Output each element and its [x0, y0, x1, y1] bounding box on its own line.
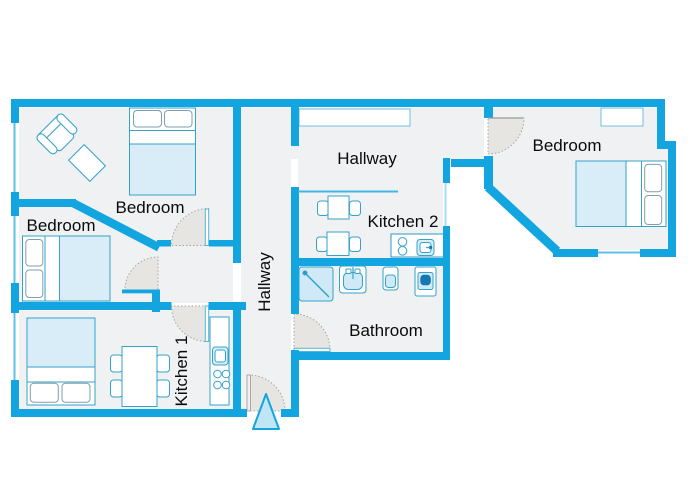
svg-text:Bathroom: Bathroom [349, 321, 423, 340]
svg-text:Hallway: Hallway [337, 149, 397, 168]
svg-text:Kitchen 1: Kitchen 1 [172, 336, 191, 407]
svg-text:Kitchen 2: Kitchen 2 [368, 212, 439, 231]
svg-text:Bedroom: Bedroom [116, 198, 185, 217]
svg-text:Hallway: Hallway [255, 252, 274, 312]
svg-text:Bedroom: Bedroom [533, 136, 602, 155]
svg-text:Bedroom: Bedroom [27, 216, 96, 235]
